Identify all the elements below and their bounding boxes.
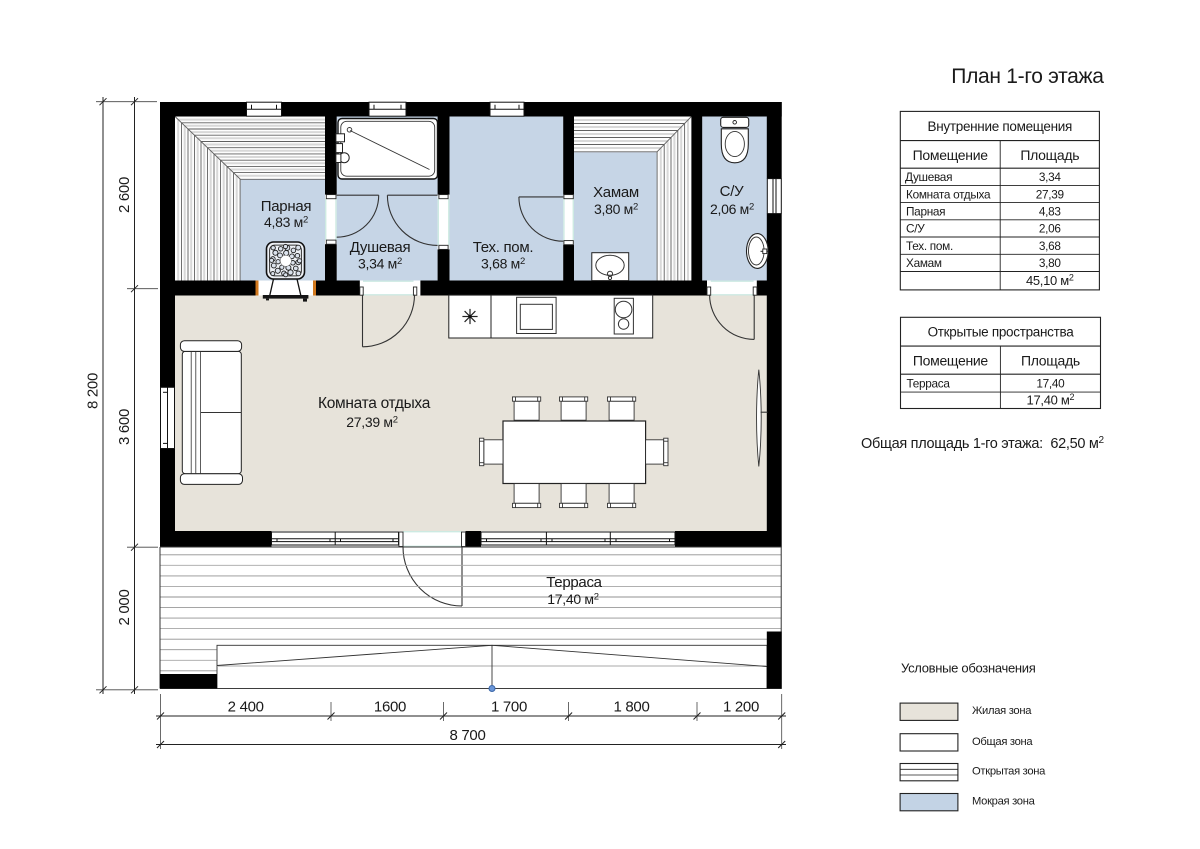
svg-text:17,40 м2: 17,40 м2 (547, 591, 598, 607)
svg-text:3,68 м2: 3,68 м2 (481, 256, 525, 272)
svg-text:1 700: 1 700 (491, 699, 527, 716)
svg-text:Помещение: Помещение (913, 147, 989, 163)
svg-text:8 200: 8 200 (85, 373, 102, 409)
svg-text:Парная: Парная (906, 205, 945, 219)
svg-text:Душевая: Душевая (350, 239, 411, 256)
svg-text:45,10 м2: 45,10 м2 (1026, 273, 1074, 289)
svg-text:3 600: 3 600 (116, 409, 133, 445)
svg-text:Парная: Парная (261, 198, 312, 215)
svg-text:Площадь: Площадь (1021, 353, 1080, 369)
svg-text:Терраса: Терраса (907, 377, 951, 391)
svg-text:Жилая зона: Жилая зона (972, 705, 1032, 717)
svg-text:Помещение: Помещение (913, 353, 989, 369)
svg-text:4,83: 4,83 (1039, 205, 1061, 219)
svg-text:Площадь: Площадь (1020, 147, 1079, 163)
svg-text:2 400: 2 400 (228, 699, 264, 716)
svg-text:С/У: С/У (906, 222, 925, 236)
svg-text:С/У: С/У (720, 183, 744, 200)
svg-text:8 700: 8 700 (449, 727, 485, 744)
svg-text:2,06 м2: 2,06 м2 (710, 201, 754, 217)
svg-text:3,34: 3,34 (1039, 170, 1061, 184)
svg-text:Хамам: Хамам (593, 184, 639, 201)
svg-text:Общая зона: Общая зона (972, 736, 1033, 748)
svg-text:План 1-го этажа: План 1-го этажа (951, 65, 1104, 88)
svg-text:Мокрая зона: Мокрая зона (972, 796, 1036, 808)
svg-text:3,80 м2: 3,80 м2 (594, 201, 638, 217)
svg-text:2 600: 2 600 (116, 177, 133, 213)
svg-text:Условные обозначения: Условные обозначения (901, 661, 1036, 676)
svg-text:27,39 м2: 27,39 м2 (346, 414, 397, 430)
svg-text:3,68: 3,68 (1039, 239, 1061, 253)
svg-text:4,83 м2: 4,83 м2 (264, 214, 308, 230)
svg-text:2 000: 2 000 (116, 589, 133, 625)
svg-text:1 800: 1 800 (613, 699, 649, 716)
svg-text:3,80: 3,80 (1039, 256, 1061, 270)
svg-text:2,06: 2,06 (1039, 222, 1061, 236)
svg-text:Терраса: Терраса (546, 574, 602, 591)
svg-text:Открытые пространства: Открытые пространства (928, 325, 1075, 340)
svg-text:Открытая зона: Открытая зона (972, 766, 1046, 778)
svg-text:Внутренние помещения: Внутренние помещения (928, 119, 1073, 134)
svg-text:Душевая: Душевая (905, 170, 952, 184)
svg-text:Общая площадь 1-го этажа: 62,: Общая площадь 1-го этажа: 62,50 м2 (861, 435, 1105, 452)
svg-text:Тех. пом.: Тех. пом. (906, 239, 953, 253)
svg-text:3,34 м2: 3,34 м2 (358, 256, 402, 272)
svg-text:1 200: 1 200 (723, 699, 759, 716)
svg-text:27,39: 27,39 (1036, 187, 1064, 201)
svg-text:Тех. пом.: Тех. пом. (473, 239, 533, 256)
svg-text:Хамам: Хамам (906, 256, 942, 270)
svg-text:17,40 м2: 17,40 м2 (1027, 392, 1075, 408)
svg-text:Комната отдыха: Комната отдыха (906, 187, 991, 201)
svg-text:1600: 1600 (374, 699, 406, 716)
svg-text:Комната отдыха: Комната отдыха (318, 395, 431, 412)
svg-text:17,40: 17,40 (1036, 377, 1065, 391)
